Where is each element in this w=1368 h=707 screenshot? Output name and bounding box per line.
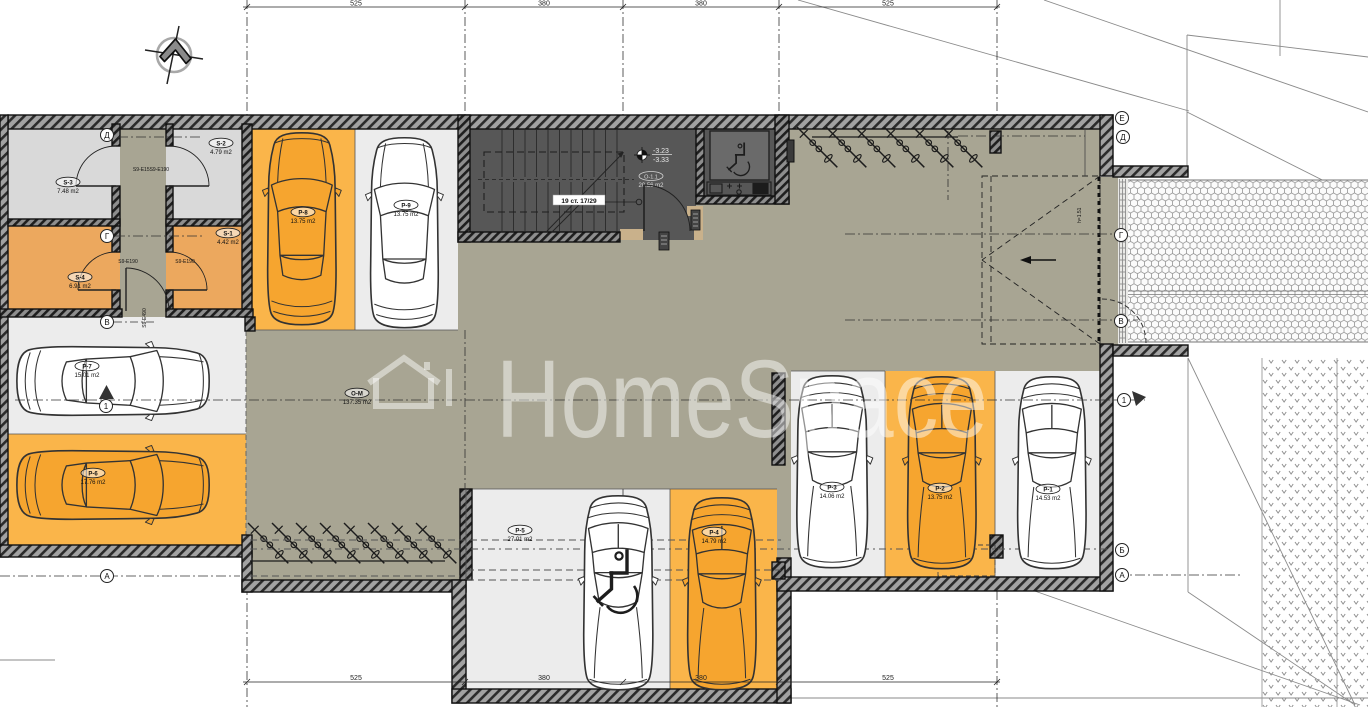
svg-text:380: 380 — [538, 675, 550, 682]
svg-text:Д: Д — [104, 131, 110, 140]
svg-text:S9-E490: S9-E490 — [142, 308, 148, 328]
svg-text:S-1: S-1 — [223, 231, 233, 237]
svg-text:4.79 m2: 4.79 m2 — [210, 150, 232, 156]
svg-text:В: В — [1118, 317, 1123, 326]
svg-text:525: 525 — [882, 1, 894, 8]
svg-text:S9-E190: S9-E190 — [118, 259, 138, 265]
svg-text:27.01 m2: 27.01 m2 — [507, 537, 533, 543]
svg-text:S-3: S-3 — [63, 180, 73, 186]
svg-text:15.01 m2: 15.01 m2 — [74, 373, 100, 379]
svg-text:P-1: P-1 — [1043, 487, 1053, 493]
svg-text:P-8: P-8 — [298, 210, 308, 216]
svg-text:S9-E15S9-E190: S9-E15S9-E190 — [133, 167, 169, 173]
svg-text:В: В — [104, 318, 109, 327]
svg-text:Е: Е — [1119, 114, 1124, 123]
svg-text:-3.33: -3.33 — [653, 157, 669, 164]
svg-text:14.53 m2: 14.53 m2 — [1035, 496, 1061, 502]
svg-text:19 ст. 17/29: 19 ст. 17/29 — [561, 198, 597, 205]
svg-text:S-4: S-4 — [75, 275, 85, 281]
svg-text:525: 525 — [882, 675, 894, 682]
svg-text:1: 1 — [104, 402, 109, 411]
svg-text:S-2: S-2 — [216, 141, 226, 147]
svg-text:6.91 m2: 6.91 m2 — [69, 284, 91, 290]
svg-text:P-4: P-4 — [709, 530, 719, 536]
svg-text:525: 525 — [350, 1, 362, 8]
svg-text:S9-E190: S9-E190 — [175, 259, 195, 265]
svg-text:4.42 m2: 4.42 m2 — [217, 240, 239, 246]
svg-text:14.79 m2: 14.79 m2 — [701, 539, 727, 545]
svg-text:17.76 m2: 17.76 m2 — [80, 480, 106, 486]
svg-text:P-2: P-2 — [935, 486, 945, 492]
svg-text:525: 525 — [350, 675, 362, 682]
svg-text:13.75 m2: 13.75 m2 — [290, 219, 316, 225]
svg-text:HomeSpace: HomeSpace — [496, 338, 988, 461]
svg-text:137.35 m2: 137.35 m2 — [343, 400, 372, 406]
svg-text:13.75 m2: 13.75 m2 — [393, 212, 419, 218]
svg-text:Д: Д — [1120, 133, 1126, 142]
svg-text:P-6: P-6 — [88, 471, 98, 477]
svg-text:14.06 m2: 14.06 m2 — [819, 494, 845, 500]
svg-text:O-1.1: O-1.1 — [644, 175, 658, 181]
svg-text:O-M: O-M — [351, 391, 363, 397]
svg-text:380: 380 — [695, 1, 707, 8]
svg-text:Б: Б — [1119, 546, 1124, 555]
svg-text:7.48 m2: 7.48 m2 — [57, 189, 79, 195]
svg-text:13.75 m2: 13.75 m2 — [927, 495, 953, 501]
svg-text:P-5: P-5 — [515, 528, 525, 534]
svg-text:380: 380 — [695, 675, 707, 682]
svg-text:Г: Г — [1119, 231, 1124, 240]
svg-text:h=1.51: h=1.51 — [1077, 207, 1083, 223]
svg-text:P-9: P-9 — [401, 203, 411, 209]
svg-text:А: А — [1119, 571, 1125, 580]
svg-text:P-7: P-7 — [82, 364, 92, 370]
svg-text:1: 1 — [1122, 396, 1127, 405]
svg-text:-3.23: -3.23 — [653, 148, 669, 155]
svg-text:А: А — [104, 572, 110, 581]
svg-text:Г: Г — [105, 232, 110, 241]
svg-text:P-3: P-3 — [827, 485, 837, 491]
svg-text:380: 380 — [538, 1, 550, 8]
